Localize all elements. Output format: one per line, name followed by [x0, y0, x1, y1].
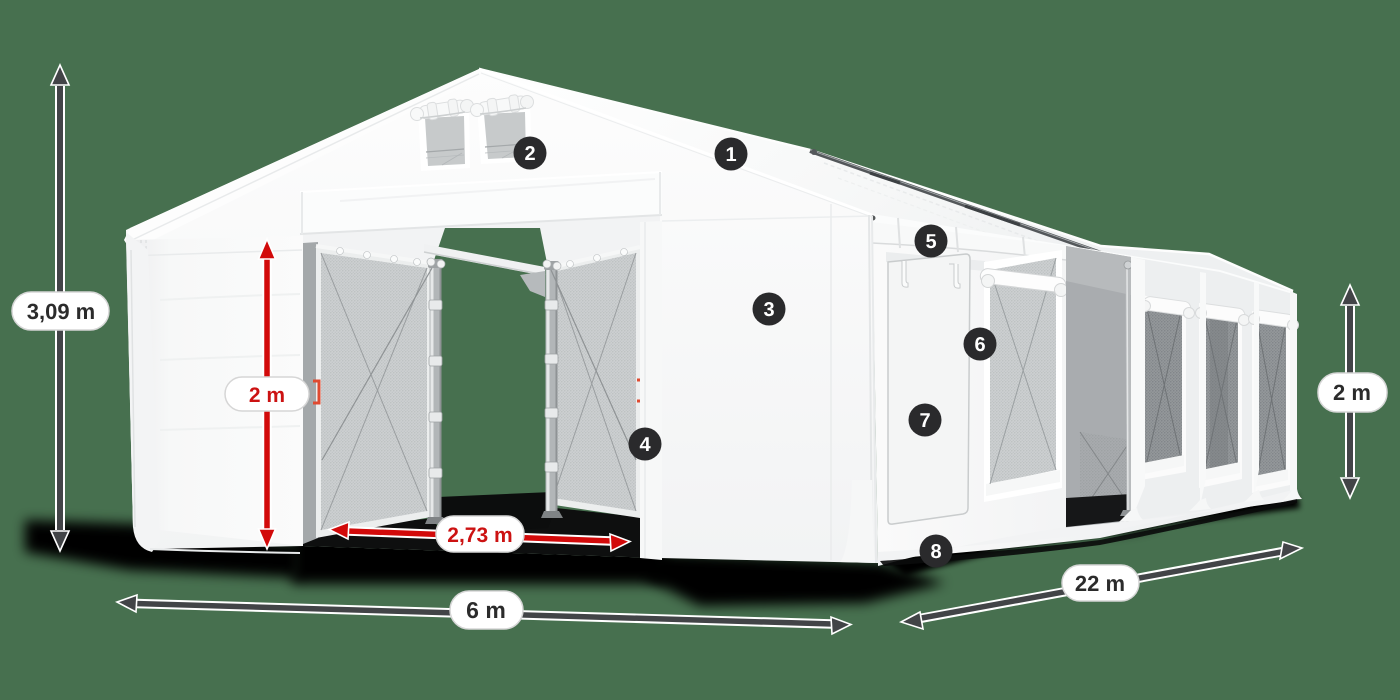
svg-text:7: 7 — [919, 410, 930, 432]
svg-text:6 m: 6 m — [466, 597, 506, 623]
svg-text:3,09 m: 3,09 m — [27, 299, 96, 324]
svg-text:8: 8 — [930, 541, 941, 563]
svg-text:3: 3 — [763, 299, 774, 321]
svg-text:4: 4 — [639, 434, 651, 456]
svg-text:1: 1 — [725, 144, 736, 166]
svg-text:6: 6 — [974, 334, 985, 356]
svg-text:22 m: 22 m — [1075, 571, 1125, 596]
svg-text:2: 2 — [524, 143, 535, 165]
svg-text:2,73 m: 2,73 m — [447, 524, 512, 547]
svg-text:2 m: 2 m — [249, 384, 285, 407]
svg-text:2 m: 2 m — [1333, 380, 1371, 405]
svg-text:5: 5 — [925, 231, 936, 253]
